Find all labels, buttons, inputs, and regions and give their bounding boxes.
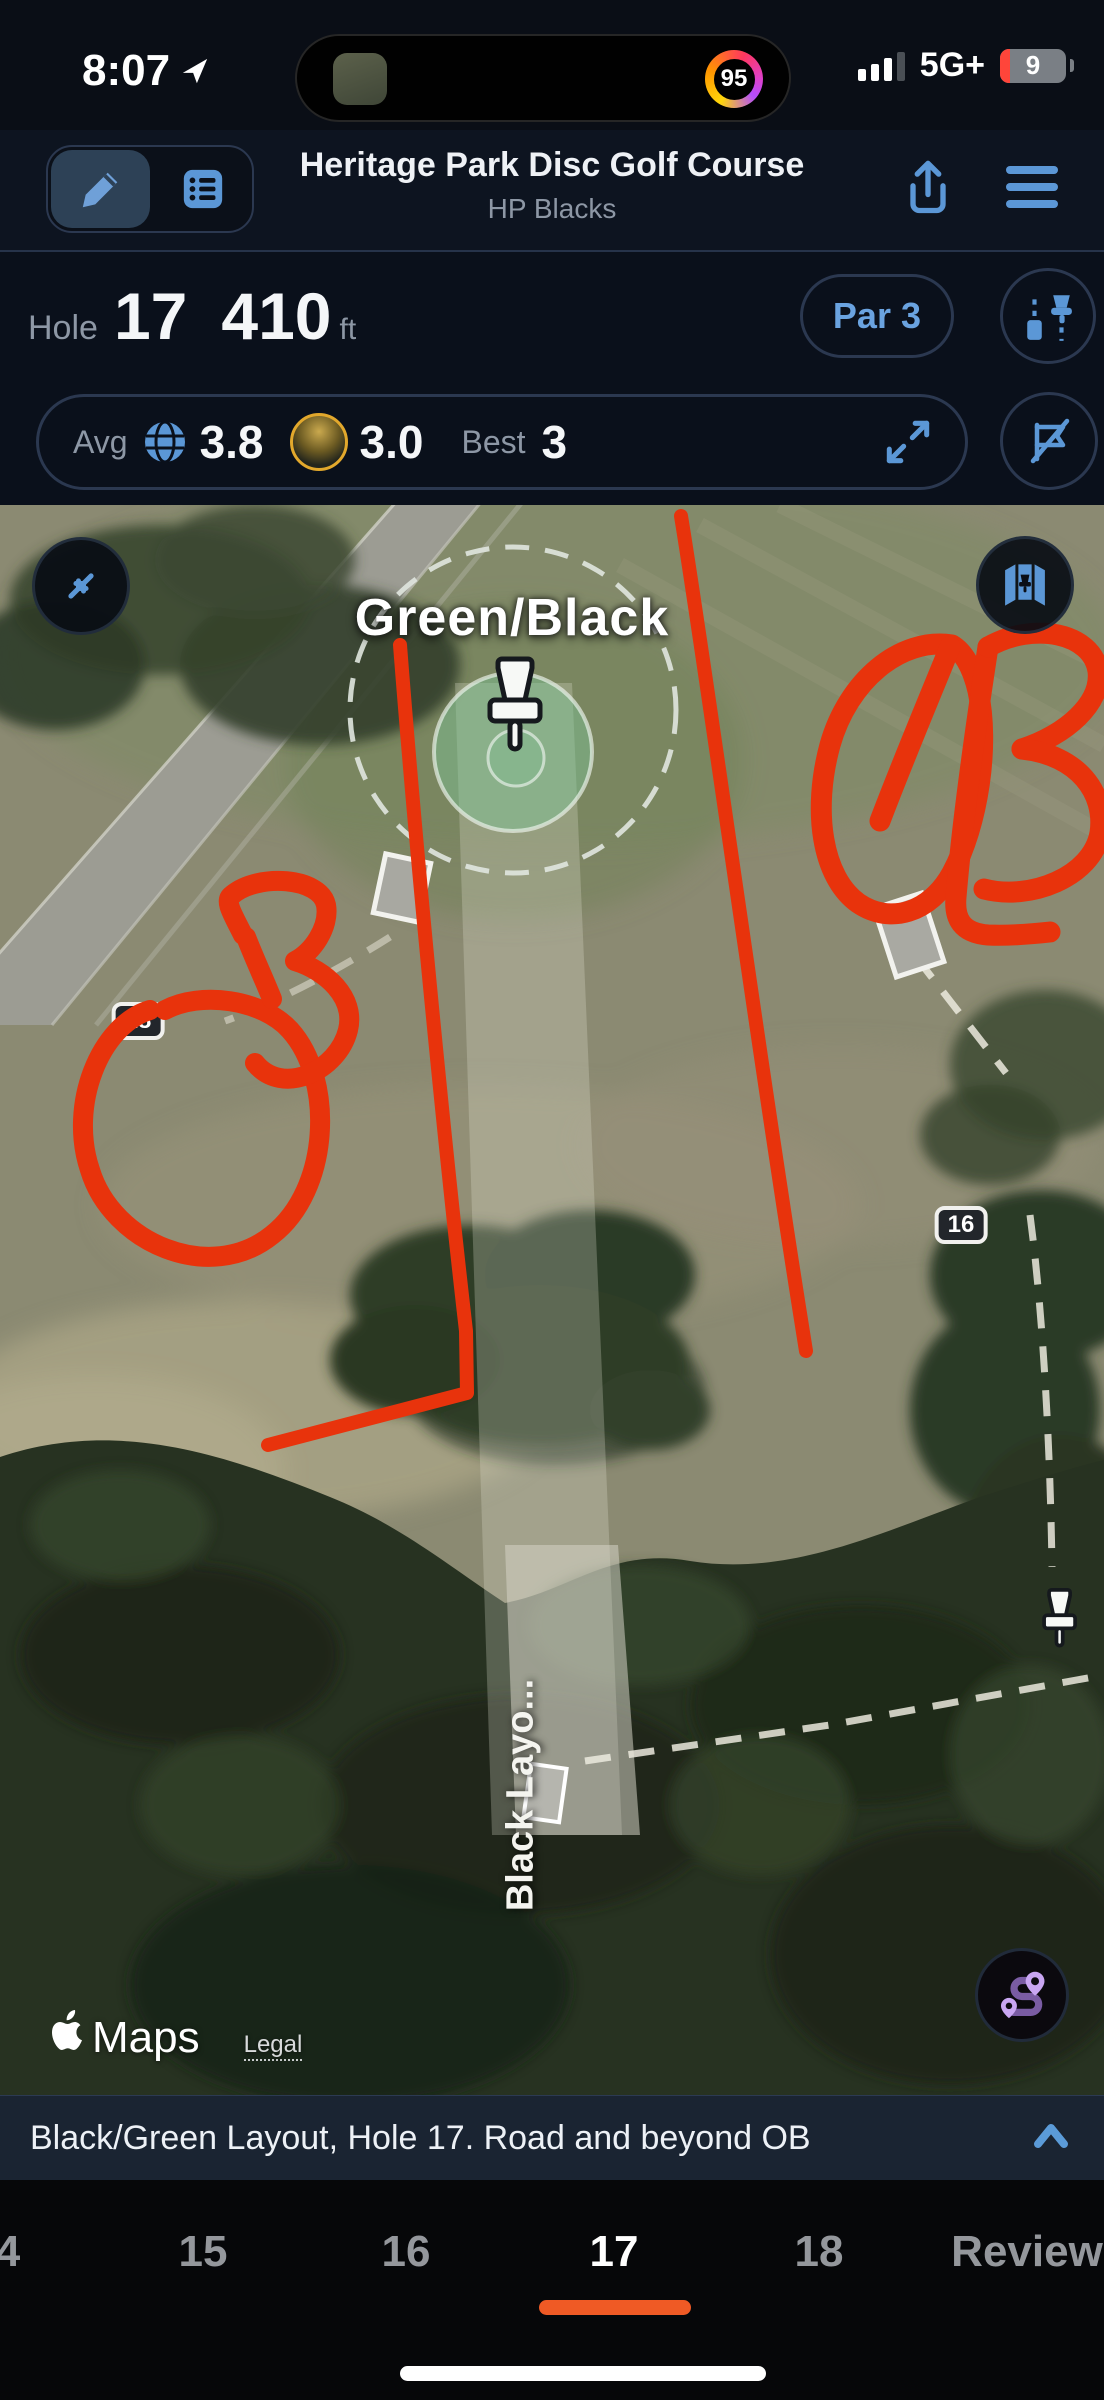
apple-logo-icon (50, 2010, 84, 2052)
draw-mode-button[interactable] (51, 150, 150, 228)
camera-preview-thumbnail[interactable] (333, 53, 387, 105)
expand-note-button[interactable] (1030, 2118, 1072, 2159)
hole-note-bar[interactable]: Black/Green Layout, Hole 17. Road and be… (0, 2095, 1104, 2180)
course-map-button[interactable] (976, 536, 1074, 634)
green-label: Green/Black (355, 588, 670, 648)
scorecard-mode-button[interactable] (153, 147, 252, 231)
hole-info-row: Hole 17 410 ft Par 3 (0, 252, 1104, 380)
collapse-icon (52, 557, 110, 615)
distance-unit: ft (339, 266, 356, 394)
player-avatar[interactable] (290, 413, 348, 471)
par-value: Par 3 (833, 295, 921, 337)
tab-hole-17[interactable]: 17 (590, 2227, 639, 2277)
hole-16-tee-marker[interactable]: 16 (935, 1206, 988, 1244)
hole-number: 17 (114, 252, 187, 380)
signal-bars-icon (858, 51, 905, 81)
flight-path-toggle[interactable] (1000, 392, 1098, 490)
player-avg-value: 3.0 (360, 415, 424, 469)
tab-hole-16[interactable]: 16 (382, 2227, 431, 2277)
measure-route-button[interactable] (975, 1948, 1069, 2042)
menu-button[interactable] (1004, 162, 1060, 219)
stats-row: Avg 3.8 3.0 Best 3 (0, 380, 1104, 505)
menu-icon (1004, 162, 1060, 214)
pencil-icon (78, 166, 124, 212)
share-button[interactable] (900, 158, 956, 223)
active-tab-indicator (539, 2300, 691, 2315)
hole-label: Hole (28, 264, 98, 392)
score-stats-pill[interactable]: Avg 3.8 3.0 Best 3 (36, 394, 968, 490)
tee-basket-icon (1021, 289, 1075, 343)
route-tool-icon (993, 1966, 1051, 2024)
battery-icon: 9 (1000, 49, 1066, 83)
globe-icon (142, 419, 188, 465)
activity-ring-value: 95 (721, 65, 748, 93)
tab-hole-18[interactable]: 18 (795, 2227, 844, 2277)
par-pill[interactable]: Par 3 (800, 274, 954, 358)
battery-cap (1070, 59, 1074, 72)
best-label: Best (461, 424, 525, 461)
scorecard-icon (180, 166, 226, 212)
activity-ring[interactable]: 95 (705, 50, 763, 108)
tab-hole-15[interactable]: 15 (179, 2227, 228, 2277)
legal-link[interactable]: Legal (244, 2031, 303, 2061)
teepad-layout-label: Black Layo... (500, 1679, 543, 1911)
map-mode-segmented-control (46, 145, 254, 233)
share-icon (900, 158, 956, 218)
dynamic-island[interactable]: 95 (295, 34, 791, 122)
map-attribution: Maps Legal (50, 2010, 302, 2063)
course-title: Heritage Park Disc Golf Course (300, 146, 805, 185)
collapse-map-button[interactable] (32, 537, 130, 635)
hole-18-tee-marker[interactable]: 18 (112, 1002, 165, 1040)
satellite-imagery (0, 505, 1104, 2095)
clock: 8:07 (82, 46, 170, 96)
status-bar: 8:07 95 5G+ 9 (0, 0, 1104, 130)
location-arrow-icon (180, 56, 210, 86)
chevron-up-icon (1030, 2118, 1072, 2154)
flag-off-icon (1023, 415, 1075, 467)
course-map[interactable]: 18 16 Green/Black Black Layo... (0, 505, 1104, 2095)
hole-distance: 410 (221, 252, 331, 380)
avg-label: Avg (73, 424, 128, 461)
network-type: 5G+ (920, 46, 985, 85)
avg-value: 3.8 (200, 415, 264, 469)
expand-icon[interactable] (885, 419, 931, 465)
course-map-icon (997, 557, 1053, 613)
hole-note-text: Black/Green Layout, Hole 17. Road and be… (30, 2119, 811, 2158)
maps-attribution-text: Maps (92, 2013, 200, 2063)
hole-tab-bar: 4 15 16 17 18 Review (0, 2180, 1104, 2400)
tab-review[interactable]: Review (951, 2227, 1103, 2277)
home-indicator[interactable] (400, 2366, 766, 2381)
battery-percent: 9 (1000, 49, 1066, 83)
tee-basket-toggle[interactable] (1000, 268, 1096, 364)
best-value: 3 (542, 415, 568, 469)
layout-subtitle: HP Blacks (300, 193, 805, 225)
tab-hole-4[interactable]: 4 (0, 2227, 20, 2277)
header: Heritage Park Disc Golf Course HP Blacks (0, 130, 1104, 252)
